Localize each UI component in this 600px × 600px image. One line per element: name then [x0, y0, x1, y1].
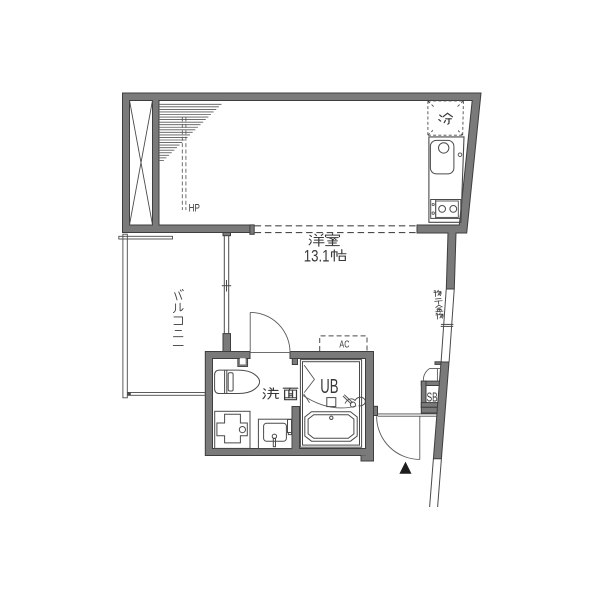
svg-text:13.1: 13.1	[304, 247, 330, 266]
svg-text:SB: SB	[427, 391, 438, 405]
svg-text:HP: HP	[189, 202, 200, 215]
svg-text:AC: AC	[339, 338, 349, 349]
svg-text:UB: UB	[320, 374, 338, 398]
